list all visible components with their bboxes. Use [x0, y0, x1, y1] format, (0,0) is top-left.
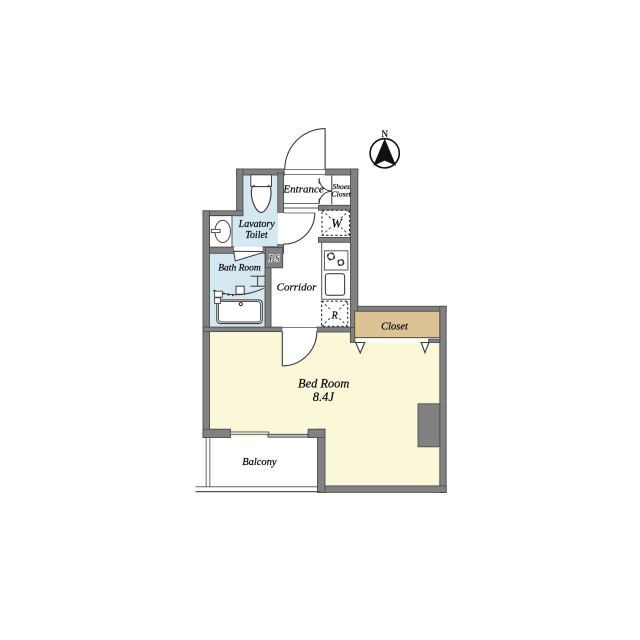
svg-text:Corridor: Corridor	[277, 281, 317, 293]
svg-text:8.4J: 8.4J	[313, 390, 336, 404]
svg-text:Closet: Closet	[381, 322, 409, 333]
svg-text:PS: PS	[268, 255, 280, 265]
svg-text:Balcony: Balcony	[242, 457, 277, 468]
svg-text:Bed Room: Bed Room	[298, 376, 349, 390]
svg-text:Closet: Closet	[332, 189, 352, 198]
svg-text:Lavatory: Lavatory	[238, 219, 276, 230]
svg-text:Entrance: Entrance	[282, 184, 323, 196]
svg-text:W: W	[331, 217, 343, 231]
svg-text:Bath Room: Bath Room	[218, 263, 261, 273]
svg-text:R: R	[331, 310, 338, 321]
svg-text:N: N	[381, 129, 388, 139]
svg-text:Toilet: Toilet	[245, 230, 268, 241]
